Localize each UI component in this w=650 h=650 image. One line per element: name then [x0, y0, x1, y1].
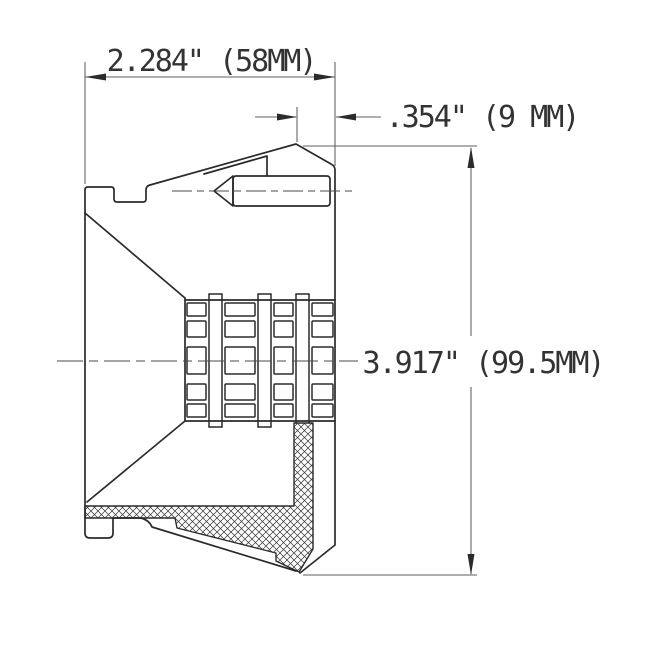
arrow-left-icon: [85, 74, 106, 81]
grid-cell: [225, 404, 255, 417]
grid-cell: [225, 321, 255, 337]
chamfer-step: [204, 156, 267, 176]
dim-offset-label: .354" (9 MM): [386, 100, 579, 135]
grid-cell: [274, 384, 293, 400]
arrow-offset-right-icon: [336, 114, 356, 121]
interior-cone-lines: [85, 213, 185, 502]
drawing-canvas: 2.284" (58MM) .354" (9 MM) 3.917" (99.5M…: [0, 0, 650, 650]
bottom-tab: [85, 518, 113, 538]
grid-cell: [225, 303, 255, 316]
grid-cell: [274, 404, 293, 417]
grid-cell: [187, 303, 206, 316]
arrow-offset-left-icon: [277, 114, 297, 121]
dim-height-label: 3.917" (99.5MM): [363, 346, 604, 381]
grid-cell: [187, 404, 206, 417]
arrow-down-icon: [468, 554, 475, 575]
grid-cell: [312, 404, 333, 417]
grid-cell: [312, 303, 333, 316]
grid-cell: [312, 321, 333, 337]
arrow-up-icon: [468, 147, 475, 168]
dim-width-label: 2.284" (58MM): [107, 44, 316, 79]
left-wall: [85, 185, 150, 518]
arrow-right-icon: [314, 74, 335, 81]
dimension-lines: [85, 62, 477, 575]
grid-cell: [312, 384, 333, 400]
grid-cell: [187, 321, 206, 337]
grid-cell: [225, 384, 255, 400]
rubber-hatch-section: [85, 423, 313, 572]
grid-cell: [187, 384, 206, 400]
grid-cell: [274, 303, 293, 316]
set-screw: [172, 176, 357, 206]
grid-cell: [274, 321, 293, 337]
drawing-page: 2.284" (58MM) .354" (9 MM) 3.917" (99.5M…: [0, 0, 650, 650]
